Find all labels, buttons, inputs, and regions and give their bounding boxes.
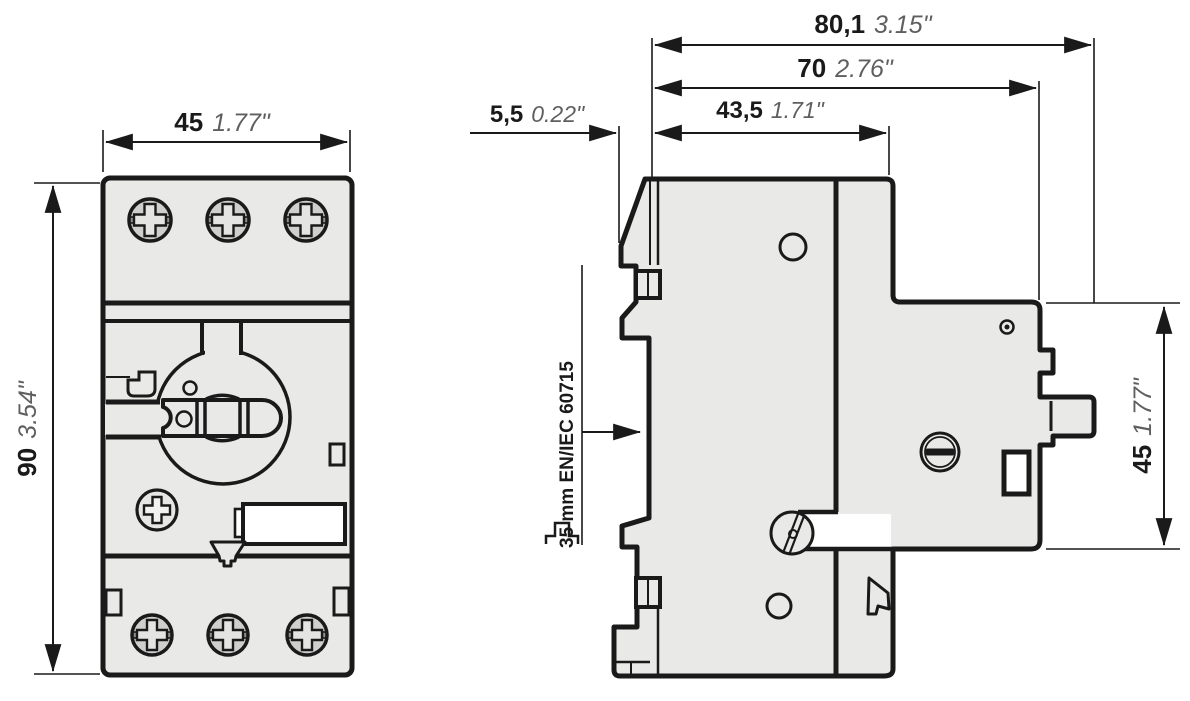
- dim-rail-offset-mm: 5,5: [490, 101, 523, 128]
- rotary-handle: [163, 395, 281, 441]
- label-window: [243, 504, 345, 544]
- adjuster-slot: [926, 449, 954, 456]
- dim-handle-base-depth: 702.76": [797, 53, 894, 83]
- dim-handle-base-depth-mm: 70: [797, 53, 826, 83]
- dim-upper-depth-mm: 43,5: [716, 97, 763, 124]
- dim-rail-offset-inch: 0.22": [531, 101, 586, 127]
- dim-total-depth-inch: 3.15": [874, 11, 933, 39]
- dim-total-depth-mm: 80,1: [814, 9, 865, 39]
- knob-tab-mask: [205, 344, 239, 356]
- front-height-dimension: 903.54": [12, 183, 100, 674]
- dim-rail-offset: 5,50.22": [490, 101, 586, 128]
- mounting-screw: [771, 512, 813, 555]
- din-rail-label: 35 mm EN/IEC 60715: [557, 361, 578, 548]
- dim-front-section-height: 451.77": [1127, 377, 1157, 474]
- front-face-window: [1004, 452, 1029, 494]
- side-view: 35 mm EN/IEC 60715: [546, 179, 1094, 676]
- dim-handle-base-depth-inch: 2.76": [834, 55, 894, 83]
- adjustment-dial: [137, 490, 177, 530]
- dim-front-width-mm: 45: [174, 107, 203, 137]
- dim-upper-depth: 43,51.71": [716, 97, 825, 124]
- side-rail-offset-dimension: 5,50.22": [470, 101, 619, 243]
- terminal-screw-icon: [208, 615, 248, 655]
- dim-front-section-height-inch: 1.77": [1129, 377, 1157, 436]
- din-rail-reference: 35 mm EN/IEC 60715: [546, 265, 640, 548]
- din-rail-clip-bottom: [636, 578, 660, 607]
- front-view: [103, 178, 352, 675]
- terminal-screw-icon: [207, 199, 249, 241]
- front-bottom-terminal-screws: [132, 615, 327, 655]
- drawing-svg: 451.77" 903.54": [0, 0, 1190, 701]
- dim-total-depth: 80,13.15": [814, 9, 932, 39]
- din-rail-clip-top: [636, 271, 660, 298]
- side-body: [614, 179, 1094, 676]
- dim-front-height: 903.54": [12, 380, 42, 477]
- terminal-screw-icon: [285, 199, 327, 241]
- front-top-terminal-screws: [129, 199, 327, 241]
- terminal-screw-icon: [132, 615, 172, 655]
- dim-front-width-inch: 1.77": [212, 109, 271, 137]
- dim-front-height-inch: 3.54": [14, 380, 42, 439]
- front-width-dimension: 451.77": [103, 107, 350, 172]
- dim-front-height-mm: 90: [12, 448, 42, 477]
- dim-front-section-height-mm: 45: [1127, 445, 1157, 474]
- dimension-drawing: 451.77" 903.54": [0, 0, 1190, 701]
- terminal-screw-icon: [129, 199, 171, 241]
- handle-channel-mask: [105, 404, 162, 435]
- dim-front-width: 451.77": [174, 107, 271, 137]
- terminal-screw-icon: [287, 615, 327, 655]
- side-upper-depth-dimension: 43,51.71": [655, 97, 889, 175]
- dim-upper-depth-inch: 1.71": [771, 97, 826, 123]
